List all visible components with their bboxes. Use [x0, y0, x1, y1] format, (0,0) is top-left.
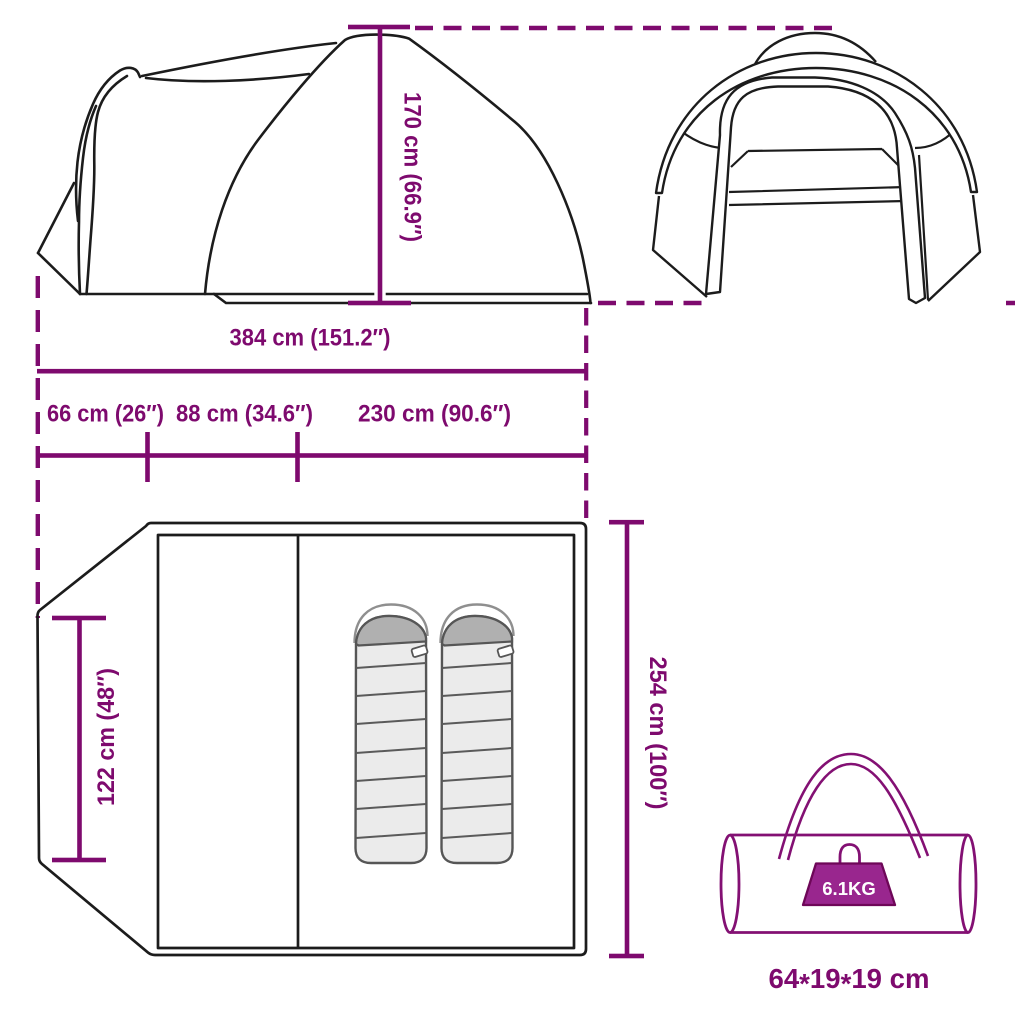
svg-text:122 cm (48″): 122 cm (48″) [93, 668, 120, 806]
svg-text:66 cm (26″): 66 cm (26″) [47, 401, 164, 428]
svg-text:88 cm (34.6″): 88 cm (34.6″) [176, 401, 313, 428]
svg-text:170 cm (66.9″): 170 cm (66.9″) [399, 92, 426, 242]
svg-text:254 cm (100″): 254 cm (100″) [644, 657, 671, 810]
svg-text:384 cm (151.2″): 384 cm (151.2″) [230, 325, 391, 352]
svg-text:6.1KG: 6.1KG [822, 878, 875, 899]
svg-text:230 cm (90.6″): 230 cm (90.6″) [358, 401, 511, 428]
svg-text:64*19*19 cm: 64*19*19 cm [769, 963, 930, 999]
